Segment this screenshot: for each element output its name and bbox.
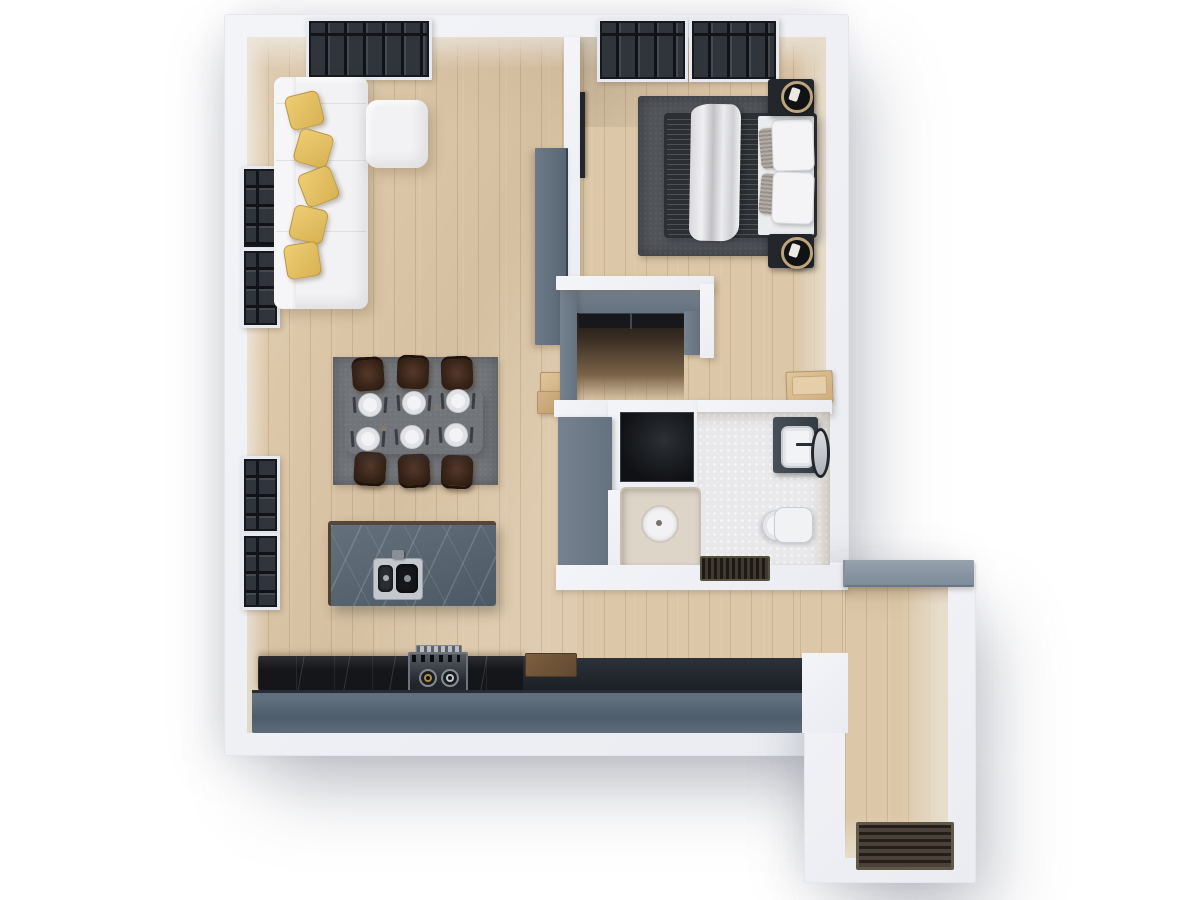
stove-grate [412, 655, 460, 662]
table-lamp-top [781, 81, 813, 113]
closet-wall-left [560, 287, 577, 402]
bath-mat [700, 556, 770, 581]
window-left-4 [241, 533, 280, 610]
sink-drain-right [404, 575, 411, 582]
plate [444, 423, 468, 447]
window-left-3 [241, 456, 280, 534]
entry-hall-floor [845, 584, 948, 858]
bed-pillow-big-2 [771, 171, 815, 224]
kitchen-island [328, 521, 496, 606]
closet-wall-right-inner [684, 311, 700, 355]
table-lamp-bottom [781, 237, 813, 269]
bedroom-south-wall [556, 276, 714, 290]
shower-drain-dot [656, 520, 662, 526]
stove-knob-right [441, 669, 459, 687]
dining-chair-4 [353, 451, 387, 487]
passage-floor [800, 584, 848, 658]
wall-tv [580, 92, 585, 178]
place-setting-2 [402, 391, 426, 415]
sink-faucet [392, 550, 404, 559]
dining-chair-2 [396, 354, 429, 389]
bath-west-partition [558, 417, 612, 567]
round-mirror [811, 428, 830, 478]
plate [356, 427, 380, 451]
stove-knob-left [419, 669, 437, 687]
hall-bench-top [792, 375, 828, 395]
place-setting-3 [446, 389, 470, 413]
washer-niche-interior [620, 412, 694, 482]
closet-wall-top [562, 287, 700, 313]
toilet-lid [774, 507, 813, 543]
bed-pillow-big-1 [771, 118, 815, 171]
place-setting-1 [358, 393, 382, 417]
bed-draped-blanket [689, 104, 741, 242]
dining-chair-3 [440, 355, 473, 390]
kitchen-counter-marble [258, 656, 525, 690]
place-setting-5 [400, 425, 424, 449]
cutting-board [525, 653, 577, 677]
place-setting-6 [444, 423, 468, 447]
plate [358, 393, 382, 417]
sink-drain-left [383, 575, 389, 581]
vanity-sink [781, 426, 814, 468]
dining-chair-6 [440, 454, 473, 489]
floor-plan-stage [0, 0, 1200, 900]
sofa-pillow-5 [282, 240, 322, 280]
entry-ledge-wall [843, 560, 974, 587]
place-setting-4 [356, 427, 380, 451]
window-top-bedroom-1 [597, 18, 688, 82]
dining-chair-1 [351, 356, 385, 392]
plate [402, 391, 426, 415]
plate [446, 389, 470, 413]
kitchen-cabinet-front [252, 690, 803, 733]
kitchen-corner-stub-wall [802, 653, 848, 733]
island-sink-unit [373, 558, 423, 600]
closet-rail-divider [630, 313, 632, 329]
plate [400, 425, 424, 449]
ottoman [366, 100, 428, 168]
window-top-living [306, 18, 432, 80]
closet-wall-right-white [700, 284, 714, 358]
dining-table [345, 388, 483, 454]
dining-chair-5 [397, 453, 431, 489]
window-top-bedroom-2 [689, 18, 779, 82]
bath-north-wall-left [554, 400, 614, 417]
entry-doormat [856, 822, 954, 870]
